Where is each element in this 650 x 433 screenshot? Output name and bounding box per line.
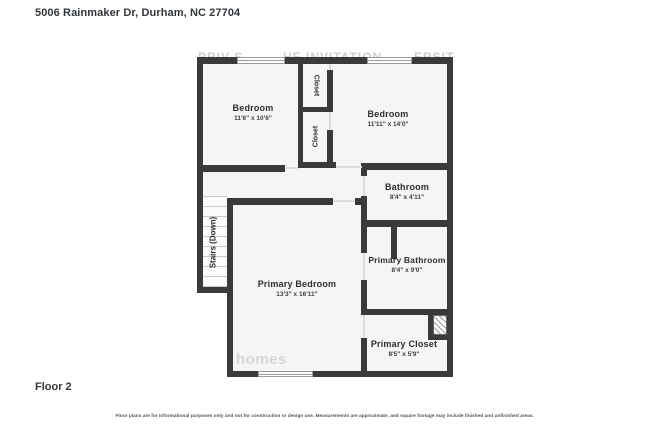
wall <box>227 198 333 205</box>
window <box>258 371 313 377</box>
room-label-primary-closet: Primary Closet 8'5" x 5'9" <box>354 339 454 359</box>
wall <box>197 57 203 293</box>
wall <box>197 57 237 64</box>
wall <box>197 165 285 172</box>
window <box>237 57 285 64</box>
disclaimer-text: Floor plans are for informational purpos… <box>116 413 534 418</box>
room-label-primary-bedroom: Primary Bedroom 13'3" x 16'11" <box>237 279 357 299</box>
room-label-closet-bottom: Closet <box>313 117 320 157</box>
wall <box>327 70 333 107</box>
room-dims: 13'3" x 16'11" <box>237 290 357 299</box>
room-dims: 11'6" x 10'6" <box>203 114 303 123</box>
door-opening <box>363 315 365 338</box>
wall <box>227 198 233 377</box>
room-label-bathroom: Bathroom 8'4" x 4'11" <box>357 182 457 202</box>
room-name: Primary Closet <box>354 339 454 350</box>
room-label-closet-top: Closet <box>313 66 320 106</box>
door-opening <box>329 112 331 130</box>
room-label-stairs: Stairs (Down) <box>209 198 218 288</box>
room-name: Bathroom <box>357 182 457 193</box>
wall <box>361 163 367 176</box>
wall <box>298 162 336 168</box>
wall <box>298 107 333 112</box>
fixture-hatch <box>433 315 447 335</box>
room-dims: 8'5" x 5'9" <box>354 350 454 359</box>
window <box>367 57 412 64</box>
room-name: Bedroom <box>203 103 303 114</box>
door-opening <box>329 64 331 70</box>
room-label-bedroom-1: Bedroom 11'6" x 10'6" <box>203 103 303 123</box>
room-name: Bedroom <box>338 109 438 120</box>
floor-plan-page: 5006 Rainmaker Dr, Durham, NC 27704 PRIV… <box>0 0 650 433</box>
door-opening <box>336 166 362 168</box>
room-label-primary-bathroom: Primary Bathroom 8'4" x 9'0" <box>357 255 457 275</box>
watermark-homes: homes <box>236 351 287 368</box>
wall <box>313 371 453 377</box>
room-dims: 8'4" x 9'0" <box>357 266 457 275</box>
address-title: 5006 Rainmaker Dr, Durham, NC 27704 <box>35 7 240 19</box>
wall <box>447 57 453 377</box>
floor-label: Floor 2 <box>35 381 72 393</box>
door-opening <box>285 167 298 169</box>
door-opening <box>333 200 355 202</box>
room-dims: 8'4" x 4'11" <box>357 193 457 202</box>
room-dims: 11'11" x 14'0" <box>338 120 438 129</box>
room-name: Primary Bathroom <box>357 255 457 266</box>
disclaimer-wrap: Floor plans are for informational purpos… <box>0 413 650 422</box>
wall <box>227 371 258 377</box>
wall <box>362 163 447 170</box>
room-name: Primary Bedroom <box>237 279 357 290</box>
room-label-bedroom-2: Bedroom 11'11" x 14'0" <box>338 109 438 129</box>
wall <box>361 220 453 227</box>
